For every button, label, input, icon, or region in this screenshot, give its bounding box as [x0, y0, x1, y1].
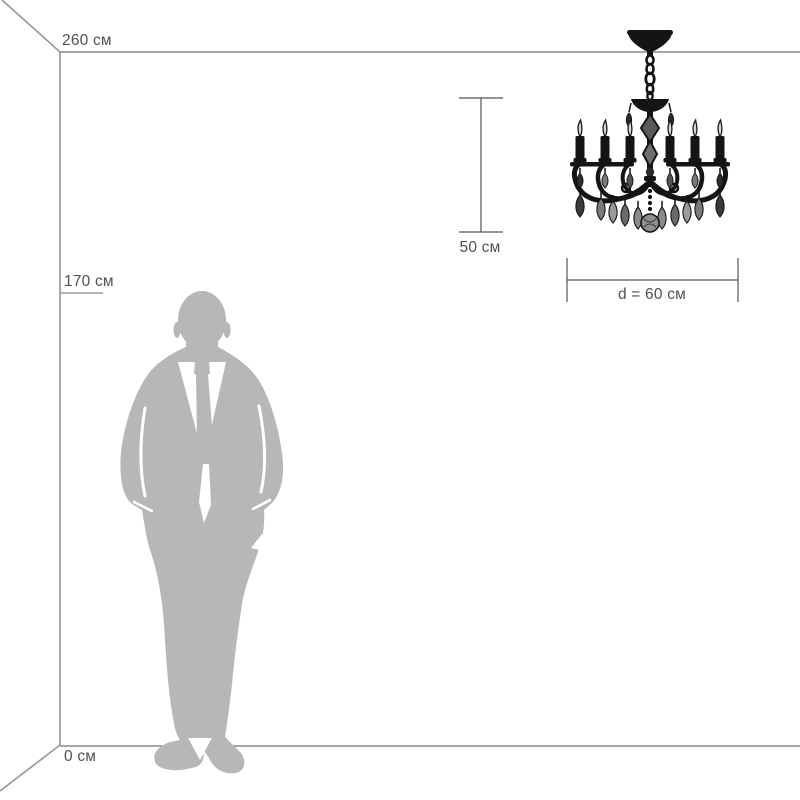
wall-corner-top-left-line [2, 0, 60, 52]
man-ear-left [174, 322, 181, 338]
chandelier-silhouette [560, 27, 738, 239]
man-ear-right [224, 322, 231, 338]
fixture-height-ruler [459, 98, 503, 232]
size-diagram: 260 см 170 см 0 см 50 см d = 60 см [0, 0, 800, 800]
chandelier-crystals [576, 183, 724, 232]
fixture-height-label: 50 см [445, 240, 515, 256]
ceiling-height-label: 260 см [62, 33, 112, 49]
person-height-label: 170 см [64, 274, 114, 290]
man-tie-knot [194, 362, 210, 374]
wall-corner-bottom-left-line [0, 745, 60, 791]
chandelier-canopy [627, 30, 673, 56]
man-jaw [186, 330, 218, 362]
floor-label: 0 см [64, 749, 96, 765]
chandelier-chain [646, 56, 654, 101]
fixture-diameter-label: d = 60 см [592, 287, 712, 303]
chandelier-column [641, 111, 659, 181]
man-silhouette [112, 290, 292, 780]
